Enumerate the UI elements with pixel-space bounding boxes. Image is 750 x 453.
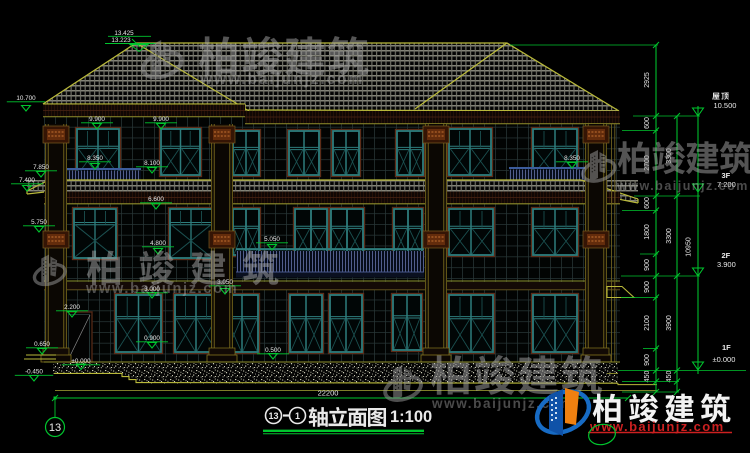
svg-text:5.050: 5.050 bbox=[264, 236, 280, 243]
svg-text:7.850: 7.850 bbox=[33, 164, 49, 171]
svg-text:0.500: 0.500 bbox=[265, 347, 281, 354]
svg-text:2100: 2100 bbox=[644, 315, 651, 331]
svg-text:www.baijunjz.com: www.baijunjz.com bbox=[199, 71, 364, 88]
svg-text:9.900: 9.900 bbox=[89, 116, 105, 123]
svg-text:13: 13 bbox=[268, 411, 278, 421]
svg-text:www.baijunjz.com: www.baijunjz.com bbox=[85, 281, 238, 297]
svg-text:0.650: 0.650 bbox=[34, 341, 50, 348]
svg-text:600: 600 bbox=[644, 197, 651, 209]
svg-text:5.750: 5.750 bbox=[31, 219, 47, 226]
svg-text:8.100: 8.100 bbox=[144, 160, 160, 167]
svg-text:900: 900 bbox=[644, 281, 651, 293]
svg-text:10950: 10950 bbox=[686, 237, 693, 257]
svg-text:22200: 22200 bbox=[318, 389, 339, 398]
svg-text:9.900: 9.900 bbox=[153, 116, 169, 123]
svg-text:8.350: 8.350 bbox=[87, 155, 103, 162]
svg-text:www.baijunjz.com: www.baijunjz.com bbox=[589, 419, 725, 434]
svg-text:450: 450 bbox=[666, 371, 673, 383]
svg-text:2F: 2F bbox=[722, 251, 731, 260]
svg-text:2.200: 2.200 bbox=[64, 304, 80, 311]
svg-text:-0.450: -0.450 bbox=[25, 369, 43, 376]
svg-text:900: 900 bbox=[644, 354, 651, 366]
svg-text:6.600: 6.600 bbox=[148, 196, 164, 203]
svg-text:1800: 1800 bbox=[644, 224, 651, 240]
svg-text:450: 450 bbox=[644, 371, 651, 383]
svg-text:www.baijunjz.com: www.baijunjz.com bbox=[616, 179, 749, 193]
svg-text:13.223: 13.223 bbox=[111, 37, 131, 44]
svg-text:3.900: 3.900 bbox=[717, 260, 736, 269]
svg-text:±0.000: ±0.000 bbox=[713, 355, 736, 364]
svg-text:8.350: 8.350 bbox=[564, 155, 580, 162]
svg-text:900: 900 bbox=[644, 259, 651, 271]
svg-text:2925: 2925 bbox=[644, 72, 651, 88]
svg-text:10.700: 10.700 bbox=[16, 95, 36, 102]
svg-text:7.400: 7.400 bbox=[19, 177, 35, 184]
svg-text:10.500: 10.500 bbox=[714, 101, 737, 110]
svg-text:0.900: 0.900 bbox=[144, 335, 160, 342]
svg-text:600: 600 bbox=[644, 117, 651, 129]
svg-text:1:100: 1:100 bbox=[390, 408, 432, 426]
svg-text:1: 1 bbox=[295, 411, 300, 421]
svg-text:3300: 3300 bbox=[666, 228, 673, 244]
svg-text:3900: 3900 bbox=[666, 315, 673, 331]
svg-text:4.800: 4.800 bbox=[150, 240, 166, 247]
svg-text:13: 13 bbox=[49, 422, 61, 434]
svg-text:1F: 1F bbox=[722, 343, 731, 352]
